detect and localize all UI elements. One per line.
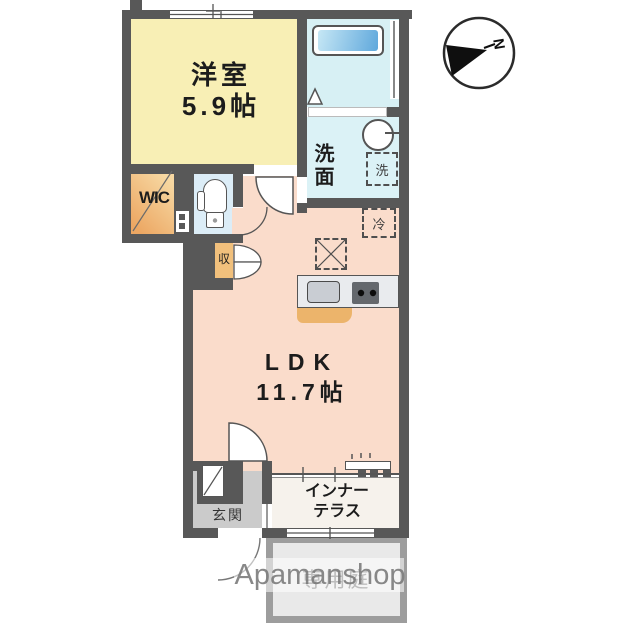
refrigerator-box: 冷	[362, 208, 396, 238]
wall	[122, 10, 412, 19]
toilet-bowl-icon	[203, 179, 227, 213]
wall	[215, 278, 233, 290]
western-room-size: 5.9帖	[146, 91, 296, 122]
door-tick	[179, 223, 185, 229]
terrace-window	[287, 529, 374, 537]
window	[170, 11, 253, 18]
wall	[130, 0, 142, 10]
stove	[352, 282, 379, 304]
shoe-cabinet	[202, 465, 224, 497]
entrance-label: 玄関	[196, 505, 260, 525]
wall	[215, 237, 233, 242]
terrace-label-line1: インナー	[287, 482, 387, 502]
wall	[122, 164, 254, 174]
counter-leg	[370, 470, 378, 477]
kitchen-cabinet	[297, 308, 352, 323]
terrace-counter	[345, 461, 391, 470]
wall	[233, 174, 243, 207]
watermark-text: Apamanshop	[210, 559, 430, 592]
compass-line	[484, 44, 495, 48]
door-tick	[179, 214, 185, 220]
wall	[183, 237, 215, 290]
washing-machine-label: 洗	[375, 160, 388, 179]
entrance-terrace-divider	[266, 504, 268, 528]
floor-plan: 洗 冷	[0, 0, 640, 640]
wall	[399, 10, 409, 538]
toilet-tank-icon	[206, 212, 224, 228]
counter-leg	[383, 470, 391, 477]
wic-label: WIC	[133, 188, 175, 208]
wall	[122, 10, 131, 243]
western-room-name: 洋室	[146, 60, 296, 91]
storage-label: 収	[215, 250, 233, 267]
terrace-label: インナー テラス	[287, 482, 387, 522]
ldk-size: 11.7帖	[222, 377, 382, 407]
wall	[387, 107, 399, 117]
compass-north-label: N	[489, 37, 508, 51]
toilet-handle-icon	[197, 191, 205, 211]
wall	[262, 461, 272, 504]
refrigerator-label: 冷	[372, 214, 385, 233]
kitchen-sink	[307, 281, 340, 303]
western-room-label: 洋室 5.9帖	[146, 60, 296, 122]
washroom-label: 洗面	[313, 139, 337, 193]
wall	[297, 198, 399, 208]
washroom-door-opening	[297, 177, 307, 203]
terrace-label-line2: テラス	[287, 502, 387, 522]
ldk-label: LDK 11.7帖	[222, 347, 382, 407]
compass-circle	[444, 18, 514, 88]
compass-needle	[446, 45, 487, 76]
ldk-name: LDK	[222, 347, 382, 377]
wall	[297, 19, 307, 177]
entrance-door-opening	[218, 528, 262, 538]
bathtub-water	[318, 30, 378, 51]
counter-leg	[358, 470, 366, 477]
washing-machine-box: 洗	[366, 152, 398, 186]
bath-door-opening	[308, 107, 387, 117]
pantry-x-box	[315, 238, 347, 270]
window	[390, 20, 399, 99]
